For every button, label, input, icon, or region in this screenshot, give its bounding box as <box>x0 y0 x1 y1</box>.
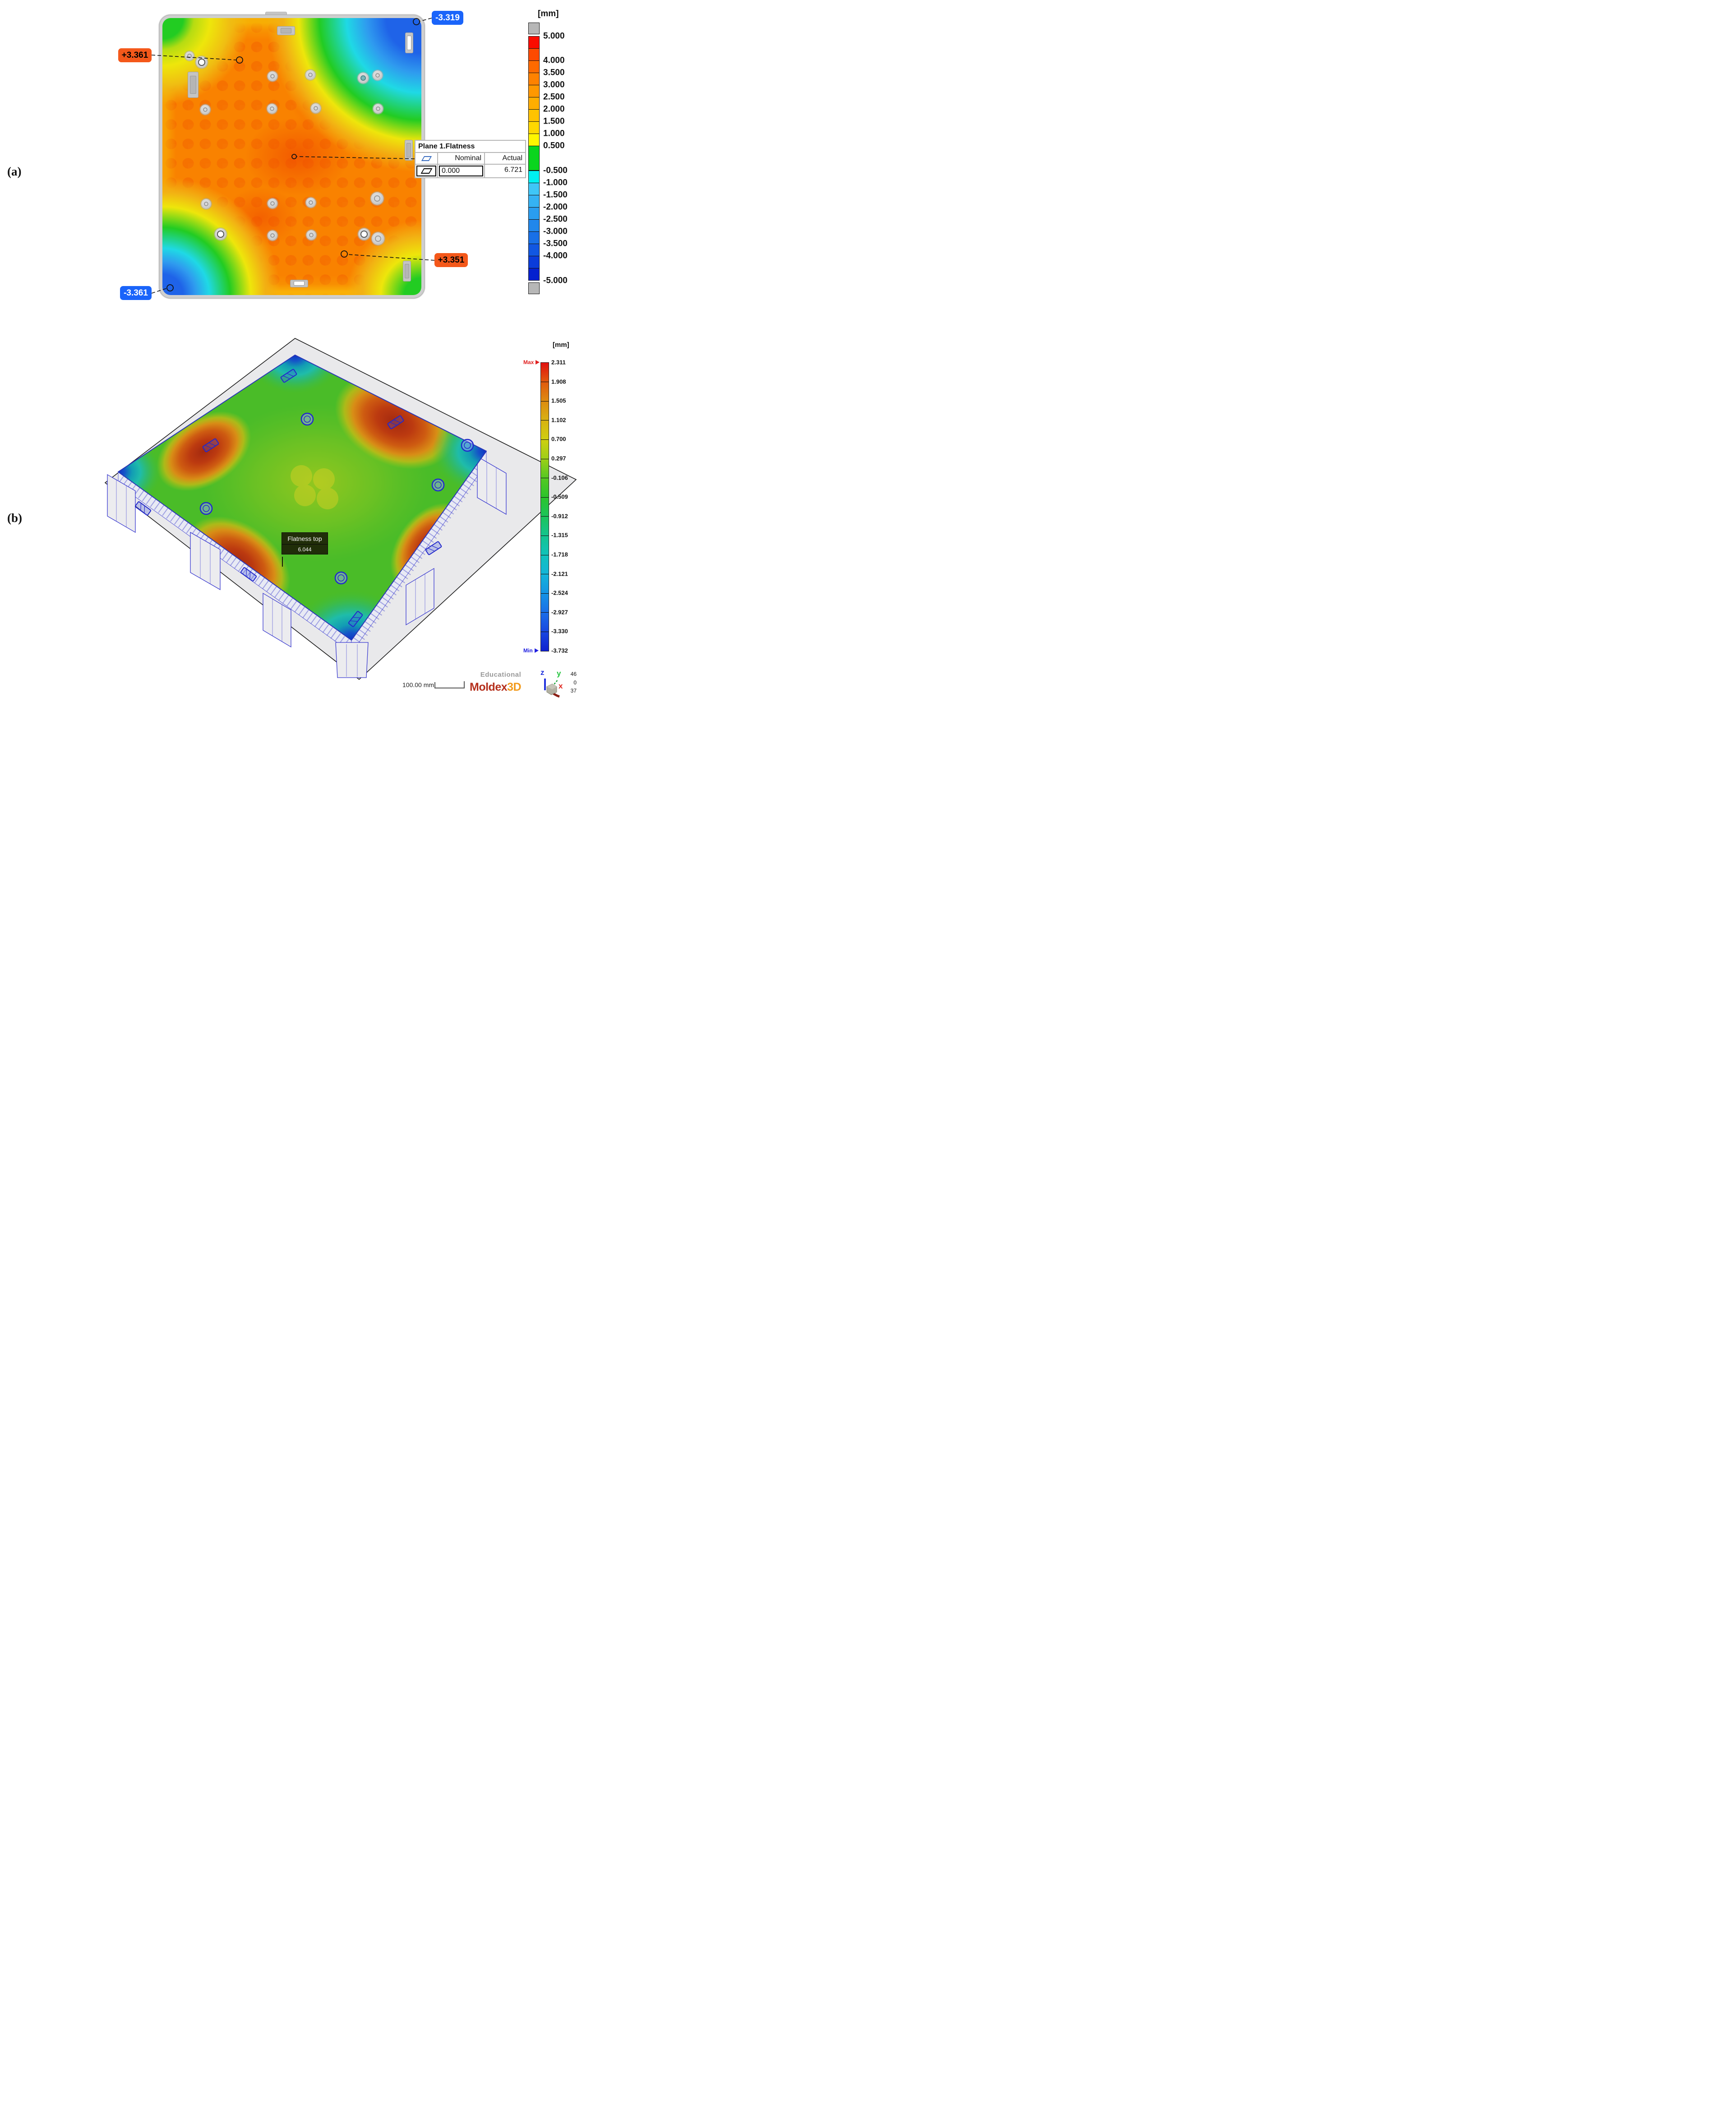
view-rotation-numbers: 46037 <box>561 670 577 695</box>
colorbar-a-swatch <box>528 171 540 183</box>
table-data-row: 0.000 6.721 <box>416 165 525 177</box>
colorbar-a-tick-label: 4.000 <box>543 56 565 65</box>
screw-boss <box>185 51 194 60</box>
boss-center <box>374 195 380 201</box>
colorbar-b-tick-label: -3.330 <box>551 628 568 634</box>
colorbar-b-tick <box>541 612 549 613</box>
colorbar-a-swatch <box>528 146 540 171</box>
screw-boss <box>306 198 316 208</box>
screw-boss <box>306 230 316 240</box>
boss-center <box>360 75 366 81</box>
view-rotation-number: 37 <box>561 687 577 695</box>
colorbar-b-tick-label: 1.505 <box>551 398 566 404</box>
colorbar-a-swatch <box>528 85 540 97</box>
colorbar-b-tick-label: -0.912 <box>551 513 568 519</box>
colorbar-b-tick-label: -0.106 <box>551 475 568 480</box>
colorbar-a: [mm] 5.0004.0003.5003.0002.5002.0001.500… <box>528 9 579 299</box>
colorbar-a-swatch <box>528 121 540 134</box>
colorbar-b-tick-label: 0.297 <box>551 456 566 462</box>
actual-header: Actual <box>485 153 525 164</box>
slot-inner <box>406 143 411 157</box>
tooltip-leader-line <box>282 557 283 567</box>
nominal-value-field: 0.000 <box>439 166 483 176</box>
screw-boss <box>373 70 383 80</box>
colorbar-a-tick-label: 3.500 <box>543 69 565 77</box>
screw-boss <box>372 232 384 245</box>
boss-center <box>187 54 192 58</box>
colorbar-a-swatch <box>528 231 540 244</box>
screw-boss <box>267 104 277 114</box>
boss-center <box>270 106 275 111</box>
annotation-max-bottom: +3.351 <box>434 253 468 267</box>
annotation-max-top: +3.361 <box>118 48 152 62</box>
panel-b-label: (b) <box>7 511 22 525</box>
flatness-table-title: Plane 1.Flatness <box>416 141 525 153</box>
colorbar-b-tick-label: -0.509 <box>551 494 568 500</box>
colorbar-a-tick-label: -4.000 <box>543 252 568 260</box>
boss-center <box>204 202 209 207</box>
colorbar-b-tick <box>541 555 549 555</box>
colorbar-a-tick-label: -1.000 <box>543 179 568 187</box>
colorbar-a-swatch <box>528 195 540 208</box>
pallet-slot <box>405 140 413 161</box>
tooltip-value: 6.044 <box>282 545 328 554</box>
colorbar-b-tick <box>541 632 549 632</box>
colorbar-a-tick-label: 1.500 <box>543 117 565 126</box>
pallet-slot <box>277 26 295 35</box>
slot-inner <box>407 36 411 50</box>
simulation-3d-view <box>102 335 579 696</box>
colorbar-a-tick-label: 2.500 <box>543 93 565 102</box>
screw-boss <box>305 70 315 80</box>
boss-center <box>375 236 381 241</box>
colorbar-b-tick <box>541 478 549 478</box>
colorbar-a-tick-label: -2.500 <box>543 215 568 224</box>
panel-a-label: (a) <box>7 165 21 179</box>
pallet-slot <box>290 280 308 287</box>
max-arrow-icon <box>536 360 540 365</box>
colorbar-b-tick <box>541 516 549 517</box>
colorbar-b-tick-label: -2.524 <box>551 590 568 596</box>
max-flag: Max <box>523 359 540 365</box>
colorbar-b-tick-label: 0.700 <box>551 436 566 442</box>
min-arrow-icon <box>535 648 539 653</box>
screw-boss <box>268 71 277 81</box>
boss-center <box>309 200 314 205</box>
colorbar-b-tick-label: -2.927 <box>551 609 568 615</box>
colorbar-a-swatch <box>528 256 540 268</box>
colorbar-b-tick <box>541 593 549 594</box>
screw-boss <box>373 104 383 114</box>
flatness-symbol-icon <box>420 168 432 174</box>
view-rotation-number: 0 <box>561 679 577 687</box>
colorbar-b: [mm] Max Min 2.3111.9081.5051.1020.7000.… <box>522 341 579 660</box>
colorbar-a-swatch <box>528 244 540 256</box>
y-axis-label: y <box>557 669 561 678</box>
colorbar-b-tick <box>541 439 549 440</box>
colorbar-b-tick <box>541 420 549 420</box>
colorbar-a-swatch <box>528 60 540 73</box>
heatmap-surface-a <box>162 18 421 295</box>
colorbar-a-unit: [mm] <box>538 9 559 19</box>
colorbar-b-tick-label: -2.121 <box>551 571 568 577</box>
colorbar-b-tick <box>541 497 549 498</box>
colorbar-a-swatch <box>528 48 540 61</box>
watermark-educational: Educational <box>478 671 523 679</box>
boss-center <box>270 201 275 206</box>
min-flag: Min <box>523 647 539 654</box>
slot-inner <box>190 76 196 94</box>
colorbar-a-tick-label: -0.500 <box>543 166 568 175</box>
scale-bar <box>434 680 466 689</box>
colorbar-a-swatch <box>528 109 540 122</box>
moldex3d-logo: Moldex3D <box>470 681 521 694</box>
pallet-a-scan <box>159 14 425 299</box>
colorbar-b-tick-label: -3.732 <box>551 648 568 654</box>
colorbar-a-tick-label: -3.000 <box>543 227 568 236</box>
colorbar-a-tick-label: 1.000 <box>543 129 565 138</box>
boss-center <box>270 233 275 238</box>
boss-center <box>217 231 224 238</box>
screw-boss <box>196 56 208 68</box>
screw-boss <box>215 228 226 240</box>
colorbar-b-tick <box>541 459 549 459</box>
colorbar-b-tick-label: -1.315 <box>551 532 568 538</box>
colorbar-a-out-of-range <box>528 282 540 294</box>
flatness-result-table: Plane 1.Flatness Nominal Actual 0.000 6.… <box>415 140 526 178</box>
colorbar-a-tick-label: -2.000 <box>543 203 568 212</box>
colorbar-a-swatch <box>528 97 540 110</box>
colorbar-a-swatch <box>528 134 540 146</box>
screw-boss <box>201 199 211 209</box>
nominal-header: Nominal <box>438 153 485 164</box>
colorbar-a-tick-label: 2.000 <box>543 105 565 114</box>
slot-inner <box>294 281 305 286</box>
boss-center <box>376 106 381 111</box>
colorbar-b-gradient <box>540 362 549 651</box>
view-rotation-number: 46 <box>561 670 577 679</box>
colorbar-a-tick-label: -1.500 <box>543 191 568 199</box>
colorbar-b-tick <box>541 536 549 536</box>
colorbar-a-tick-label: -5.000 <box>543 277 568 285</box>
colorbar-a-tick-label: 0.500 <box>543 142 565 150</box>
scale-bar-label: 100.00 mm <box>402 681 434 688</box>
colorbar-b-tick-label: -1.718 <box>551 552 568 558</box>
screw-boss <box>268 199 277 208</box>
pallet-slot <box>405 32 413 53</box>
figure-canvas: (a) (b) +3.361 -3.319 -3.361 +3.351 Plan… <box>0 0 579 705</box>
boss-center <box>198 59 205 66</box>
actual-value: 6.721 <box>485 165 525 177</box>
colorbar-a-tick-label: 3.000 <box>543 81 565 89</box>
colorbar-a-swatch <box>528 207 540 220</box>
slot-inner <box>405 264 409 278</box>
colorbar-a-tick-label: 5.000 <box>543 32 565 41</box>
colorbar-b-tick-label: 2.311 <box>551 360 566 365</box>
boss-center <box>309 233 314 238</box>
z-axis-label: z <box>540 668 545 677</box>
flatness-symbol-icon <box>421 156 431 161</box>
colorbar-a-out-of-range <box>528 23 540 34</box>
screw-boss <box>358 73 369 83</box>
colorbar-a-swatch <box>528 36 540 49</box>
colorbar-b-tick <box>541 382 549 382</box>
colorbar-b-unit: [mm] <box>553 341 569 349</box>
boss-center <box>375 73 380 78</box>
table-header-row: Nominal Actual <box>416 153 525 165</box>
boss-center <box>270 74 275 79</box>
screw-boss <box>268 231 277 240</box>
colorbar-b-tick-label: 1.102 <box>551 417 566 423</box>
colorbar-a-swatch <box>528 219 540 232</box>
boss-center <box>360 231 368 238</box>
colorbar-b-tick-label: 1.908 <box>551 379 566 384</box>
colorbar-a-swatch <box>528 268 540 281</box>
colorbar-b-tick <box>541 401 549 402</box>
colorbar-a-swatch <box>528 183 540 195</box>
screw-boss <box>358 228 370 240</box>
boss-center <box>203 107 208 112</box>
screw-boss <box>371 192 383 205</box>
annotation-min-bottom: -3.361 <box>120 286 152 300</box>
colorbar-a-swatch <box>528 73 540 85</box>
screw-boss <box>311 103 321 113</box>
colorbar-b-tick <box>541 574 549 574</box>
slot-inner <box>281 28 291 34</box>
tooltip-title: Flatness top <box>282 533 328 545</box>
boss-center <box>314 106 319 111</box>
annotation-min-top: -3.319 <box>432 11 463 25</box>
pallet-slot <box>403 261 411 282</box>
screw-boss <box>200 105 210 115</box>
flatness-probe-tooltip: Flatness top 6.044 <box>282 532 328 554</box>
boss-center <box>308 73 313 78</box>
colorbar-a-tick-label: -3.500 <box>543 240 568 248</box>
pallet-slot <box>188 72 199 98</box>
